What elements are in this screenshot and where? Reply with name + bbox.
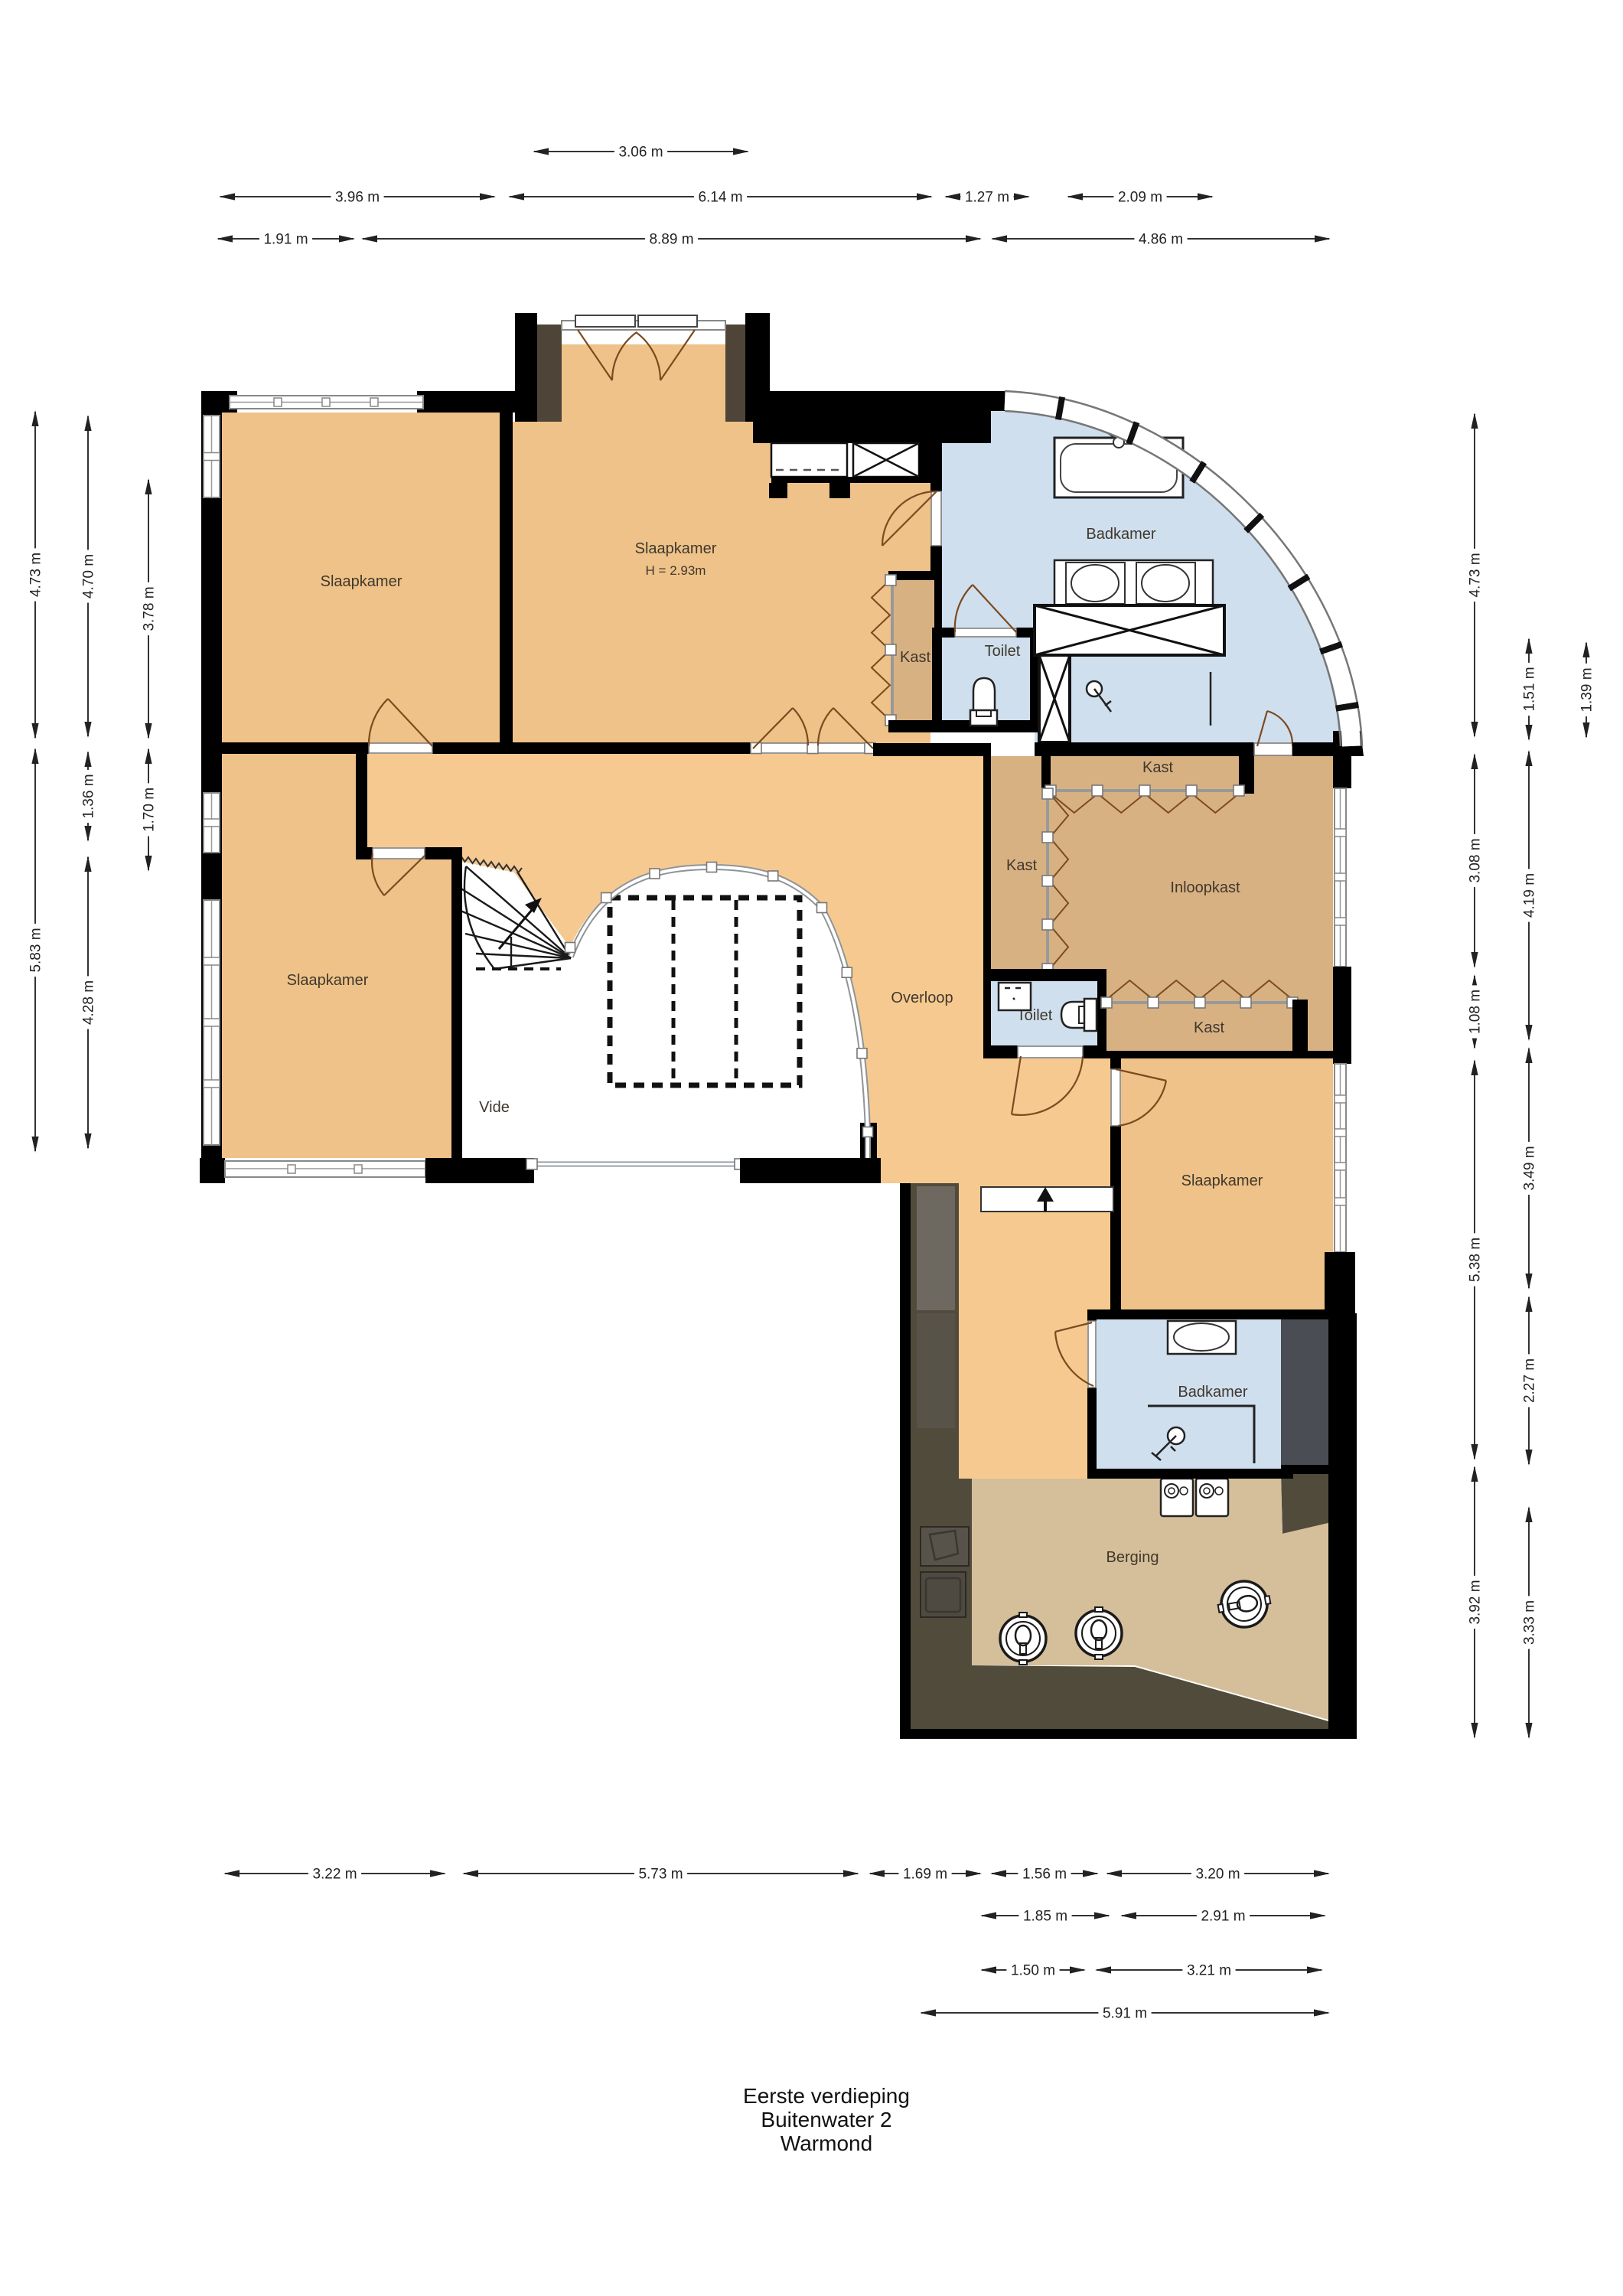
- svg-text:1.27 m: 1.27 m: [965, 190, 1009, 206]
- svg-text:3.06 m: 3.06 m: [618, 145, 663, 161]
- svg-text:5.73 m: 5.73 m: [638, 1867, 683, 1883]
- svg-text:2.09 m: 2.09 m: [1118, 190, 1162, 206]
- svg-text:1.51 m: 1.51 m: [1522, 667, 1538, 711]
- svg-text:5.91 m: 5.91 m: [1103, 2006, 1147, 2022]
- svg-text:2.27 m: 2.27 m: [1522, 1358, 1538, 1403]
- svg-text:Slaapkamer: Slaapkamer: [287, 972, 369, 989]
- svg-text:3.22 m: 3.22 m: [312, 1867, 357, 1883]
- svg-text:3.49 m: 3.49 m: [1522, 1146, 1538, 1190]
- svg-text:1.85 m: 1.85 m: [1023, 1909, 1067, 1925]
- svg-text:1.50 m: 1.50 m: [1011, 1963, 1055, 1979]
- svg-text:6.14 m: 6.14 m: [698, 190, 742, 206]
- svg-text:3.20 m: 3.20 m: [1195, 1867, 1240, 1883]
- svg-text:Inloopkast: Inloopkast: [1170, 879, 1240, 896]
- svg-text:1.39 m: 1.39 m: [1579, 667, 1595, 712]
- svg-text:2.91 m: 2.91 m: [1201, 1909, 1245, 1925]
- svg-text:3.21 m: 3.21 m: [1187, 1963, 1231, 1979]
- svg-text:4.86 m: 4.86 m: [1139, 232, 1183, 248]
- svg-text:3.92 m: 3.92 m: [1468, 1580, 1484, 1624]
- svg-text:Slaapkamer: Slaapkamer: [321, 573, 402, 590]
- svg-text:Badkamer: Badkamer: [1086, 526, 1155, 543]
- svg-text:1.70 m: 1.70 m: [142, 788, 158, 832]
- svg-text:1.08 m: 1.08 m: [1468, 990, 1484, 1034]
- svg-text:Badkamer: Badkamer: [1178, 1384, 1247, 1401]
- svg-text:4.19 m: 4.19 m: [1522, 873, 1538, 918]
- svg-text:3.33 m: 3.33 m: [1522, 1600, 1538, 1645]
- svg-text:Slaapkamer: Slaapkamer: [1181, 1172, 1263, 1189]
- svg-text:Berging: Berging: [1106, 1549, 1159, 1566]
- svg-text:Kast: Kast: [1142, 759, 1173, 776]
- svg-text:5.83 m: 5.83 m: [28, 928, 44, 972]
- svg-text:4.73 m: 4.73 m: [1468, 553, 1484, 597]
- svg-text:3.78 m: 3.78 m: [142, 586, 158, 631]
- svg-text:Warmond: Warmond: [781, 2131, 872, 2155]
- svg-text:3.96 m: 3.96 m: [335, 190, 380, 206]
- svg-text:Kast: Kast: [900, 649, 930, 666]
- svg-text:Kast: Kast: [1006, 857, 1037, 874]
- svg-text:Slaapkamer: Slaapkamer: [635, 540, 717, 557]
- svg-text:Vide: Vide: [479, 1099, 510, 1116]
- svg-text:1.56 m: 1.56 m: [1022, 1867, 1067, 1883]
- svg-text:Kast: Kast: [1194, 1019, 1224, 1036]
- svg-text:Overloop: Overloop: [891, 990, 953, 1006]
- svg-text:Buitenwater 2: Buitenwater 2: [761, 2108, 891, 2131]
- svg-text:4.70 m: 4.70 m: [81, 554, 97, 598]
- svg-text:4.73 m: 4.73 m: [28, 553, 44, 597]
- svg-text:Eerste verdieping: Eerste verdieping: [743, 2084, 910, 2108]
- svg-text:5.38 m: 5.38 m: [1468, 1238, 1484, 1282]
- svg-text:H = 2.93m: H = 2.93m: [646, 563, 706, 578]
- svg-text:1.91 m: 1.91 m: [263, 232, 308, 248]
- svg-text:8.89 m: 8.89 m: [649, 232, 693, 248]
- svg-text:1.69 m: 1.69 m: [903, 1867, 947, 1883]
- svg-text:1.36 m: 1.36 m: [81, 774, 97, 818]
- svg-text:3.08 m: 3.08 m: [1468, 838, 1484, 882]
- svg-text:4.28 m: 4.28 m: [81, 980, 97, 1025]
- svg-text:Toilet: Toilet: [985, 643, 1021, 660]
